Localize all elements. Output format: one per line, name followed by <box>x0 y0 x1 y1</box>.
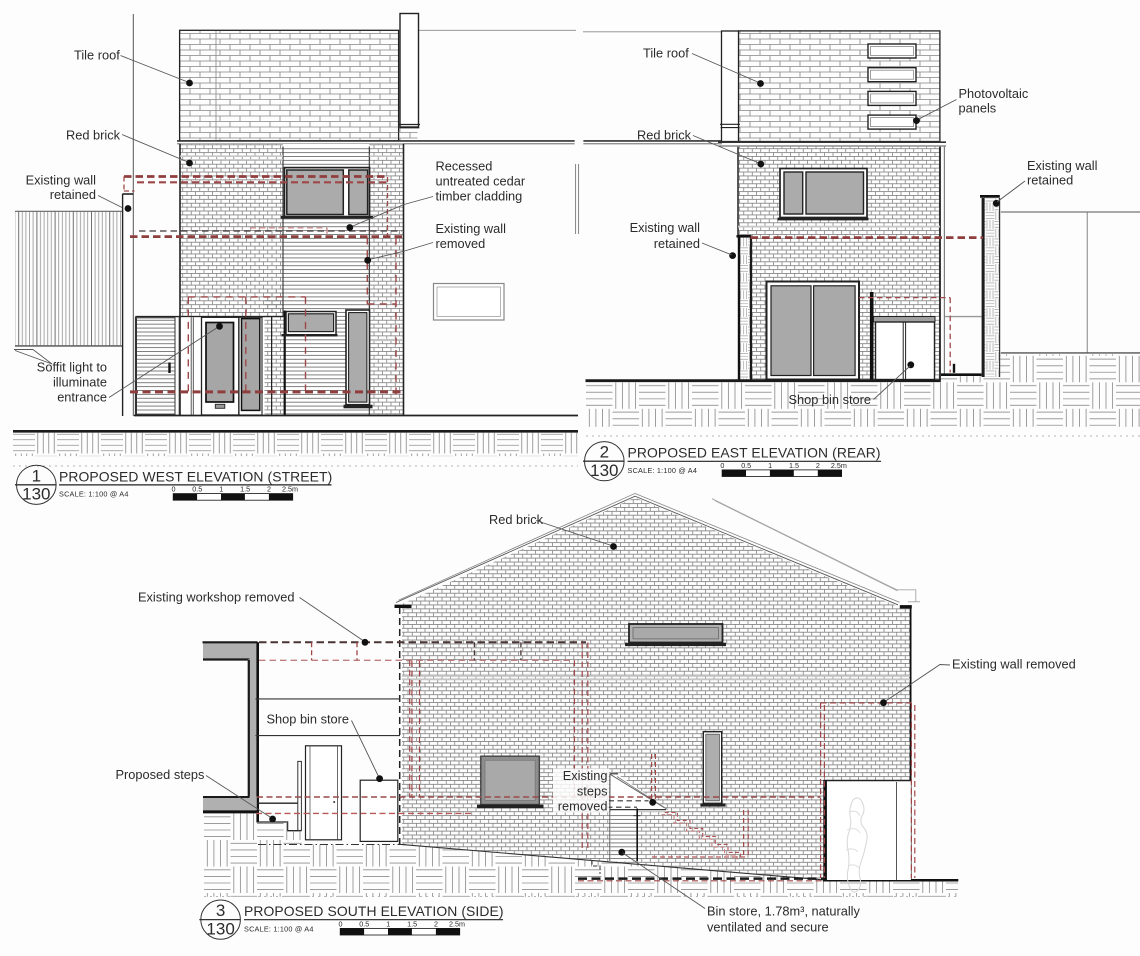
svg-text:Existing: Existing <box>563 768 608 783</box>
svg-text:Existing wall: Existing wall <box>436 221 506 236</box>
svg-text:0.5: 0.5 <box>741 461 751 470</box>
svg-text:0.5: 0.5 <box>359 919 369 928</box>
svg-text:PROPOSED EAST ELEVATION (REAR): PROPOSED EAST ELEVATION (REAR) <box>628 445 881 461</box>
svg-text:steps: steps <box>577 783 608 798</box>
svg-text:130: 130 <box>22 485 50 504</box>
svg-text:untreated cedar: untreated cedar <box>436 174 526 189</box>
svg-text:Shop bin store: Shop bin store <box>267 712 350 727</box>
svg-text:Red brick: Red brick <box>66 128 121 143</box>
svg-text:Existing wall removed: Existing wall removed <box>952 657 1076 672</box>
svg-text:0: 0 <box>720 461 724 470</box>
svg-text:retained: retained <box>50 187 96 202</box>
svg-text:1: 1 <box>219 485 223 494</box>
svg-text:Existing wall: Existing wall <box>1027 158 1097 173</box>
svg-text:removed: removed <box>436 236 486 251</box>
svg-text:Existing wall: Existing wall <box>630 220 700 235</box>
svg-text:panels: panels <box>959 101 997 116</box>
svg-text:Red brick: Red brick <box>489 512 544 527</box>
svg-text:130: 130 <box>590 461 618 480</box>
svg-text:PROPOSED SOUTH ELEVATION (SIDE: PROPOSED SOUTH ELEVATION (SIDE) <box>244 903 504 919</box>
svg-text:2: 2 <box>267 485 271 494</box>
svg-text:Soffit light to: Soffit light to <box>37 360 107 375</box>
svg-text:SCALE: 1:100 @ A4: SCALE: 1:100 @ A4 <box>59 490 129 499</box>
svg-text:1.5: 1.5 <box>789 461 799 470</box>
svg-text:1: 1 <box>386 919 390 928</box>
svg-text:2.5m: 2.5m <box>282 485 298 494</box>
svg-text:entrance: entrance <box>57 390 107 405</box>
svg-text:1.5: 1.5 <box>240 485 250 494</box>
svg-text:1.5: 1.5 <box>407 919 417 928</box>
svg-text:retained: retained <box>1027 173 1073 188</box>
svg-text:0.5: 0.5 <box>192 485 202 494</box>
svg-text:0: 0 <box>339 919 343 928</box>
svg-text:Existing workshop removed: Existing workshop removed <box>138 590 294 605</box>
svg-text:2: 2 <box>600 443 609 462</box>
svg-text:2: 2 <box>816 461 820 470</box>
svg-text:illuminate: illuminate <box>53 375 107 390</box>
svg-text:2.5m: 2.5m <box>449 919 465 928</box>
svg-text:Red brick: Red brick <box>637 128 692 143</box>
svg-text:0: 0 <box>172 485 176 494</box>
svg-text:Proposed steps: Proposed steps <box>116 767 205 782</box>
svg-text:2: 2 <box>434 919 438 928</box>
svg-text:2.5m: 2.5m <box>831 461 847 470</box>
svg-text:Tile roof: Tile roof <box>643 46 689 61</box>
svg-text:1: 1 <box>768 461 772 470</box>
svg-text:PROPOSED WEST ELEVATION (STREE: PROPOSED WEST ELEVATION (STREET) <box>59 468 332 484</box>
svg-text:1: 1 <box>32 466 41 485</box>
svg-text:timber cladding: timber cladding <box>436 189 523 204</box>
svg-text:SCALE: 1:100 @ A4: SCALE: 1:100 @ A4 <box>244 924 314 933</box>
svg-text:ventilated and secure: ventilated and secure <box>707 920 829 935</box>
svg-text:retained: retained <box>654 236 700 251</box>
svg-text:Existing wall: Existing wall <box>26 173 96 188</box>
svg-text:Tile roof: Tile roof <box>74 48 120 63</box>
svg-text:Bin store, 1.78m³, naturally: Bin store, 1.78m³, naturally <box>707 904 861 919</box>
svg-text:130: 130 <box>206 919 234 938</box>
svg-text:Shop bin store: Shop bin store <box>789 392 872 407</box>
svg-text:SCALE: 1:100 @ A4: SCALE: 1:100 @ A4 <box>628 466 698 475</box>
svg-text:3: 3 <box>216 901 225 920</box>
svg-text:removed: removed <box>558 798 608 813</box>
svg-text:Photovoltaic: Photovoltaic <box>959 86 1029 101</box>
svg-text:Recessed: Recessed <box>436 159 493 174</box>
